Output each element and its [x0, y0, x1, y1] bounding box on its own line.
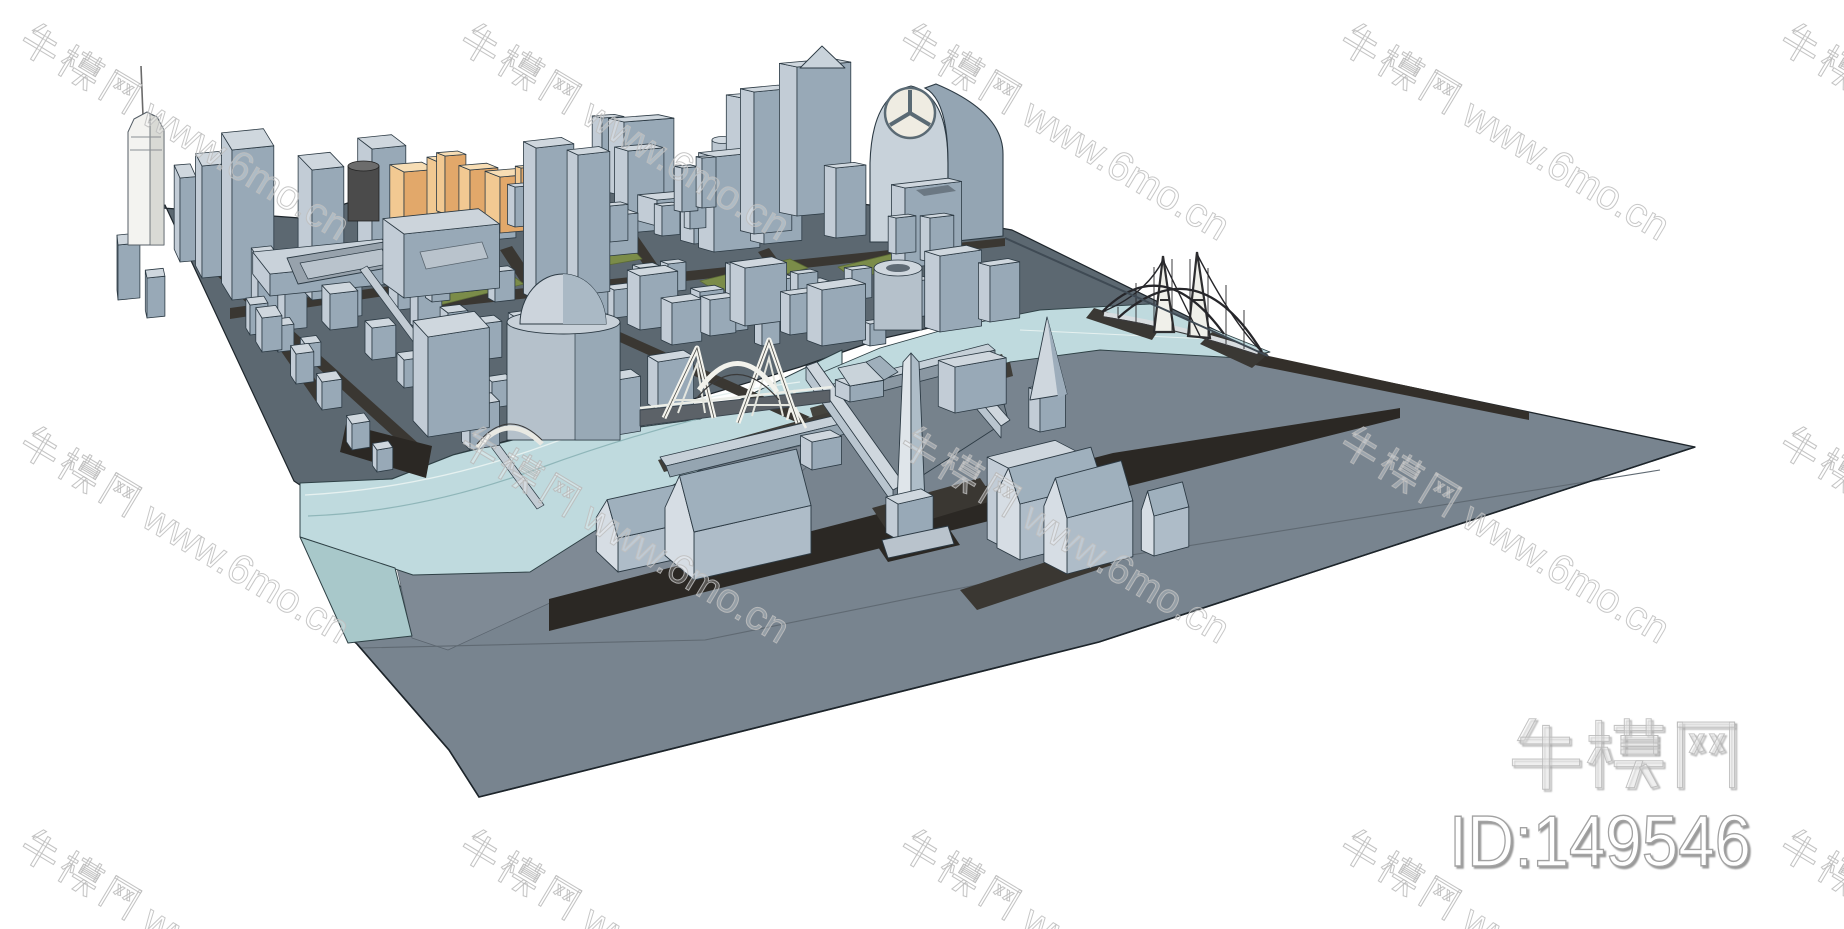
- svg-text:ID:149546: ID:149546: [1449, 802, 1751, 882]
